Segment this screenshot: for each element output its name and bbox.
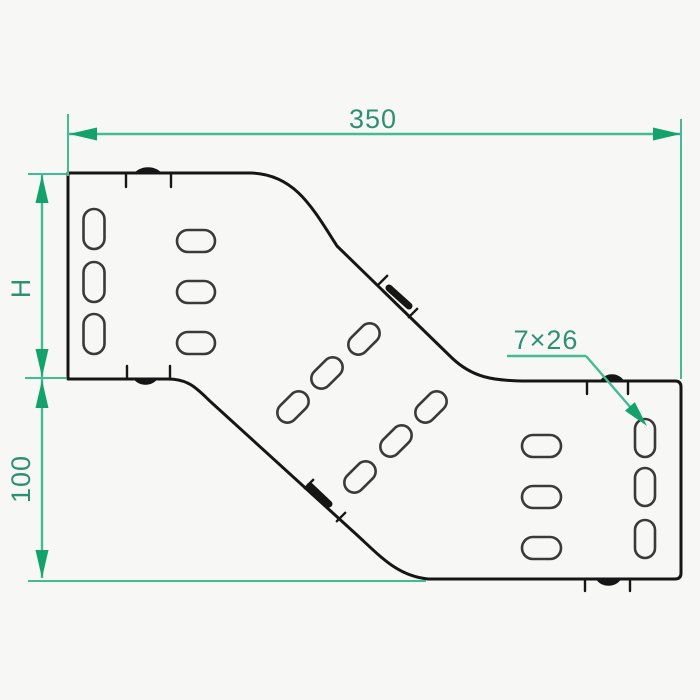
weld-bump xyxy=(134,167,162,174)
slot xyxy=(273,387,313,427)
arrowhead-down-icon xyxy=(36,550,49,578)
weld-tick xyxy=(409,309,417,317)
dimension-label-width: 350 xyxy=(349,104,397,134)
dimension-height-H: H xyxy=(6,174,66,578)
slot xyxy=(522,435,561,457)
arrowhead-right-icon xyxy=(653,128,681,141)
slot xyxy=(177,281,215,303)
weld-bump xyxy=(596,579,621,586)
arrowhead-left-icon xyxy=(69,128,97,141)
slot xyxy=(635,468,655,506)
slot-group-right-inner-column xyxy=(522,435,561,559)
part-outline-group xyxy=(68,173,681,579)
slot xyxy=(84,209,105,249)
arrowhead-up-icon xyxy=(36,175,49,203)
arrowhead-down-icon xyxy=(36,349,49,377)
slot-group-lower-diagonal-row xyxy=(340,387,451,497)
slot xyxy=(522,537,561,559)
reducer-drawing-canvas: 350 H 100 7×26 xyxy=(0,0,700,700)
dimension-label-height-h: H xyxy=(6,278,36,299)
reducer-body-outline xyxy=(68,173,681,579)
slot xyxy=(177,230,215,252)
weld-bump xyxy=(133,378,158,385)
dimension-height-100: 100 xyxy=(6,380,426,581)
weld-tick xyxy=(379,276,387,284)
dimension-width-350: 350 xyxy=(68,104,681,379)
slot xyxy=(344,319,384,359)
slot-group-upper-diagonal-row xyxy=(273,319,384,427)
slot xyxy=(635,520,655,558)
slot xyxy=(84,314,105,354)
weld-bump xyxy=(389,288,409,306)
slot-group-left-outer-column xyxy=(84,209,105,354)
slot-size-label: 7×26 xyxy=(514,325,579,355)
arrowhead-up-icon xyxy=(36,380,49,408)
slot xyxy=(635,419,655,457)
technical-drawing-page: 350 H 100 7×26 xyxy=(0,0,700,700)
slot xyxy=(84,262,105,302)
slot xyxy=(376,421,416,461)
slot xyxy=(340,457,380,497)
slot xyxy=(411,387,451,427)
slot xyxy=(522,486,561,508)
slot-size-callout: 7×26 xyxy=(507,325,647,426)
slot-group-right-outer-column xyxy=(635,419,655,558)
slot-group-left-inner-column xyxy=(177,230,215,354)
slot xyxy=(177,332,215,354)
slot xyxy=(307,353,347,393)
dimension-label-height-100: 100 xyxy=(6,455,36,503)
